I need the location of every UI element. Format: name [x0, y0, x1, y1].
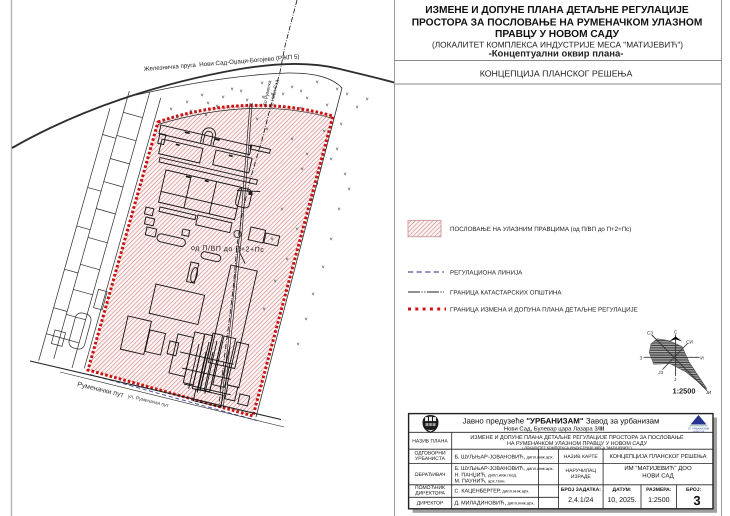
svg-text:Нови Сад, Булевар цара Лазара: Нови Сад, Булевар цара Лазара 3/III	[504, 426, 605, 433]
svg-text:НАЗИВ ПЛАНА: НАЗИВ ПЛАНА	[412, 439, 448, 445]
svg-text:ГРАНИЦА КАТАСТАРСКИХ ОПШТИНА: ГРАНИЦА КАТАСТАРСКИХ ОПШТИНА	[450, 290, 562, 297]
svg-text:10, 2025.: 10, 2025.	[607, 497, 636, 504]
svg-text:ИЗМЕНЕ И ДОПУНЕ ПЛАНА ДЕТАЉНЕ: ИЗМЕНЕ И ДОПУНЕ ПЛАНА ДЕТАЉНЕ РЕГУЛАЦИЈЕ	[425, 5, 689, 16]
svg-text:СЗ: СЗ	[647, 331, 653, 336]
svg-text:-Концептуални оквир плана-: -Концептуални оквир плана-	[489, 48, 624, 59]
svg-text:РЕГУЛАЦИОНА ЛИНИЈА: РЕГУЛАЦИОНА ЛИНИЈА	[450, 270, 523, 277]
svg-text:БРОЈ ЗАДАТКА:: БРОЈ ЗАДАТКА:	[561, 487, 601, 493]
svg-text:ПРОСТОРА ЗА ПОСЛОВАЊЕ НА РУМЕН: ПРОСТОРА ЗА ПОСЛОВАЊЕ НА РУМЕНАЧКОМ УЛАЗ…	[412, 17, 703, 28]
svg-text:ПРАВЦУ У НОВОМ САДУ: ПРАВЦУ У НОВОМ САДУ	[495, 29, 620, 40]
svg-text:КОНЦЕПЦИЈА ПЛАНСКОГ РЕШЕЊА: КОНЦЕПЦИЈА ПЛАНСКОГ РЕШЕЊА	[609, 454, 706, 460]
svg-text:3: 3	[693, 493, 700, 508]
svg-text:ДИРЕКТОРА: ДИРЕКТОРА	[415, 491, 445, 497]
svg-text:ИМ "МАТИЈЕВИЋ" ДОО: ИМ "МАТИЈЕВИЋ" ДОО	[624, 465, 692, 472]
svg-text:Јавно предузеће "УРБАНИЗАМ" За: Јавно предузеће "УРБАНИЗАМ" Завод за урб…	[463, 417, 660, 426]
svg-text:( ЛОКАЛИТЕТ КОМПЛЕКСА ИНДУСТРИ: ( ЛОКАЛИТЕТ КОМПЛЕКСА ИНДУСТРИЈЕ МЕСА "М…	[522, 446, 632, 450]
svg-text:Ј: Ј	[674, 377, 676, 382]
svg-text:НОВИ САД: НОВИ САД	[693, 430, 705, 433]
svg-text:ОБРАЂИВАЧ: ОБРАЂИВАЧ	[415, 472, 446, 478]
svg-text:УРБАНИСТА: УРБАНИСТА	[415, 456, 446, 462]
svg-text:НАЗИВ КАРТЕ: НАЗИВ КАРТЕ	[564, 454, 599, 460]
svg-text:ДИРЕКТОР: ДИРЕКТОР	[417, 501, 444, 507]
svg-text:ЈЗ: ЈЗ	[658, 370, 663, 375]
svg-text:И: И	[700, 356, 703, 361]
svg-text:2,4.1/24: 2,4.1/24	[568, 496, 593, 504]
svg-text:КОНЦЕПЦИЈА ПЛАНСКОГ РЕШЕЊА: КОНЦЕПЦИЈА ПЛАНСКОГ РЕШЕЊА	[480, 69, 633, 79]
svg-text:ДАТУМ:: ДАТУМ:	[613, 487, 632, 493]
svg-text:СИ: СИ	[686, 340, 693, 345]
svg-text:З: З	[640, 356, 643, 361]
svg-text:ИЗРАДЕ: ИЗРАДЕ	[571, 474, 592, 480]
svg-text:ЈП УРБАНИЗАМ: ЈП УРБАНИЗАМ	[688, 427, 710, 431]
svg-text:ГРАНИЦА ИЗМЕНА И ДОПУНА ПЛАНА: ГРАНИЦА ИЗМЕНА И ДОПУНА ПЛАНА ДЕТАЉНЕ РЕ…	[450, 307, 638, 314]
svg-text:ПОСЛОВАЊЕ НА УЛАЗНИМ ПРАВЦИМА: ПОСЛОВАЊЕ НА УЛАЗНИМ ПРАВЦИМА (од П/ВП д…	[450, 226, 631, 233]
svg-text:НОВИ САД: НОВИ САД	[642, 473, 673, 480]
svg-text:1:2500: 1:2500	[648, 497, 670, 504]
svg-text:ЈИ: ЈИ	[706, 390, 712, 395]
svg-text:РАЗМЕРА:: РАЗМЕРА:	[646, 487, 672, 493]
svg-text:1:2500: 1:2500	[672, 387, 695, 396]
